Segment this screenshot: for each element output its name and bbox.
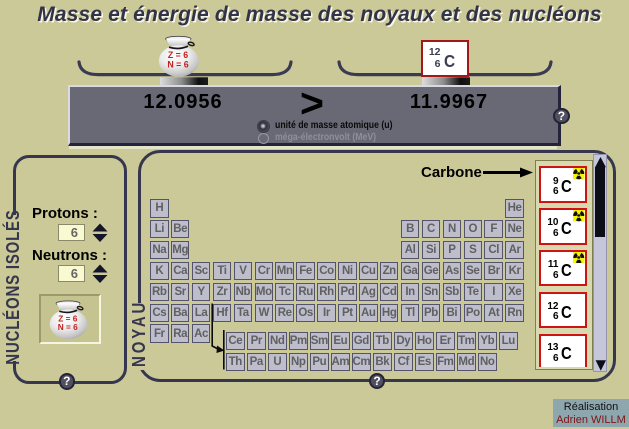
svg-text:N = 6: N = 6: [167, 59, 188, 69]
svg-text:N = 6: N = 6: [58, 323, 78, 332]
svg-text:Z = 6: Z = 6: [58, 314, 77, 323]
